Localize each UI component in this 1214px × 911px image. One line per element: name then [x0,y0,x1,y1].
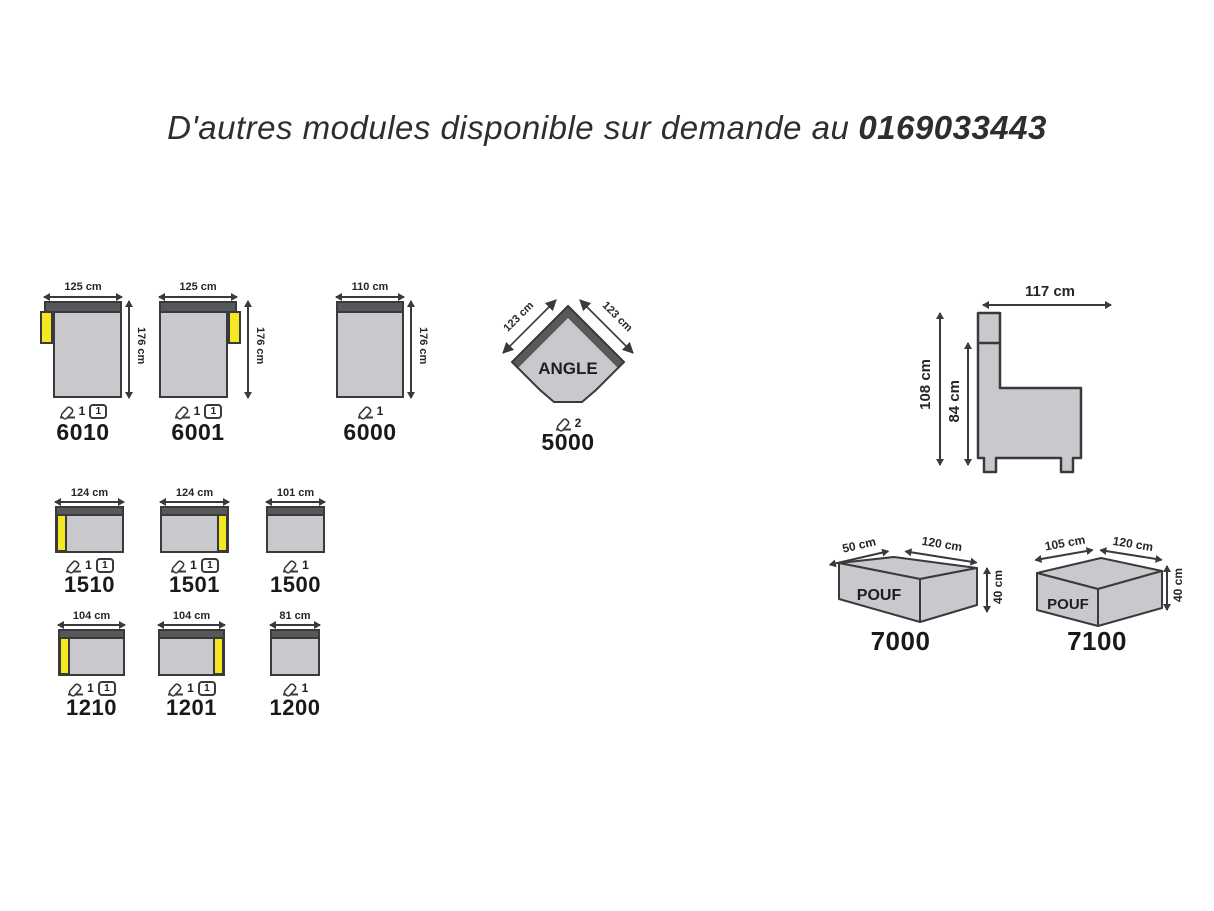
seat-top-view [58,629,125,676]
height-dimension-label: 40 cm [1171,568,1185,602]
width-dimension-label: 124 cm [160,487,229,499]
height-arrow [986,568,988,612]
backrest-wedge-icon [174,403,192,419]
seat-surface [336,311,404,398]
cushion-count: 1 [204,683,210,694]
seat-surface [159,311,228,398]
model-number: 1200 [250,695,340,721]
width-dimension-label: 104 cm [58,610,125,622]
cushion-icon: 1 [98,681,116,696]
feature-icons: 1 [336,402,404,420]
seat-height-label: 84 cm [946,380,963,423]
phone-number: 0169033443 [858,109,1047,146]
wedge-count: 2 [575,416,582,430]
model-number: 1210 [38,695,145,721]
armrest-left [59,637,70,675]
backrest-wedge-icon [59,403,77,419]
width-dimension-label: 110 cm [336,281,404,293]
model-number: 5000 [478,429,658,456]
wedge-count: 1 [190,558,197,572]
width-dimension-label: 101 cm [266,487,325,499]
wedge-count: 1 [377,404,384,418]
cushion-icon: 1 [198,681,216,696]
module-5000: 123 cm 123 cm ANGLE 2 5000 [498,298,638,410]
corner-module-diagram: 123 cm 123 cm ANGLE [498,298,638,410]
pouf-3d-drawing: POUF [823,556,988,626]
armrest-right [217,514,228,552]
armrest-left [56,514,67,552]
cushion-icon: 1 [204,404,222,419]
total-height-label: 108 cm [917,359,934,410]
backrest-wedge-icon [67,680,85,696]
model-number: 6001 [139,419,257,446]
backrest-wedge-icon [282,557,300,573]
height-dimension-label: 176 cm [135,327,147,364]
cushion-icon: 1 [201,558,219,573]
page-title: D'autres modules disponible sur demande … [0,109,1214,147]
width-arrow [55,501,124,503]
cushion-icon: 1 [89,404,107,419]
seat-surface [270,637,320,676]
width-dimension-label: 125 cm [159,281,237,293]
seat-top-view [159,301,237,398]
model-number: 1501 [140,572,249,598]
height-dimension-label: 176 cm [254,327,266,364]
wedge-count: 1 [87,681,94,695]
title-text: D'autres modules disponible sur demande … [167,109,849,146]
cushion-count: 1 [207,560,213,571]
seat-surface [266,514,325,553]
angle-label: ANGLE [538,359,598,378]
model-number: 1201 [138,695,245,721]
backrest-wedge-icon [357,403,375,419]
height-arrow [247,301,249,398]
width-arrow [160,501,229,503]
height-arrow [128,301,130,398]
seat-top-view [158,629,225,676]
width-arrow [159,296,237,298]
seat-top-view [266,506,325,553]
wedge-count: 1 [187,681,194,695]
right-side-dimension-label: 123 cm [600,299,635,334]
width-arrow [336,296,404,298]
height-dimension-label: 176 cm [417,327,429,364]
backrest-wedge-icon [65,557,83,573]
width-arrow [270,624,320,626]
height-arrow [1166,566,1168,610]
backrest-wedge-icon [282,680,300,696]
width-dimension-label: 104 cm [158,610,225,622]
cushion-count: 1 [211,406,217,417]
wedge-count: 1 [194,404,201,418]
seat-top-view [270,629,320,676]
armrest-right [228,311,241,344]
wedge-count: 1 [302,558,309,572]
model-number: 1500 [246,572,345,598]
width-dimension-label: 117 cm [985,283,1115,300]
cushion-icon: 1 [96,558,114,573]
seat-top-view [44,301,122,398]
width-dimension-label: 125 cm [44,281,122,293]
backrest-wedge-icon [170,557,188,573]
width-dimension-label: 81 cm [270,610,320,622]
height-dimension-label: 40 cm [991,570,1005,604]
armrest-right [213,637,224,675]
width-arrow [266,501,325,503]
left-side-dimension-label: 123 cm [501,299,536,334]
model-number: 6000 [316,419,424,446]
seat-top-view [55,506,124,553]
total-height-arrow [939,313,941,465]
model-number: 1510 [35,572,144,598]
wedge-count: 1 [79,404,86,418]
width-arrow [158,624,225,626]
sofa-profile-drawing [975,310,1085,475]
width-arrow [983,304,1111,306]
wedge-count: 1 [85,558,92,572]
cushion-count: 1 [96,406,102,417]
modules-diagram-page: { "title": { "prefix": "D'autres modules… [0,0,1214,911]
backrest-wedge-icon [167,680,185,696]
pouf-label: POUF [1047,596,1089,613]
feature-icons: 1 1 [44,402,122,420]
width-dimension-label: 124 cm [55,487,124,499]
model-number: 6010 [24,419,142,446]
pouf-3d-drawing: POUF [1032,554,1172,629]
model-number: 7100 [1032,626,1162,657]
width-arrow [44,296,122,298]
seat-top-view [336,301,404,398]
seat-top-view [160,506,229,553]
feature-icons: 1 1 [159,402,237,420]
seat-height-arrow [967,343,969,465]
seat-surface [53,311,122,398]
model-number: 7000 [823,626,978,657]
wedge-count: 1 [302,681,309,695]
armrest-left [40,311,53,344]
pouf-label: POUF [857,587,902,604]
width-arrow [58,624,125,626]
height-arrow [410,301,412,398]
cushion-count: 1 [102,560,108,571]
cushion-count: 1 [104,683,110,694]
